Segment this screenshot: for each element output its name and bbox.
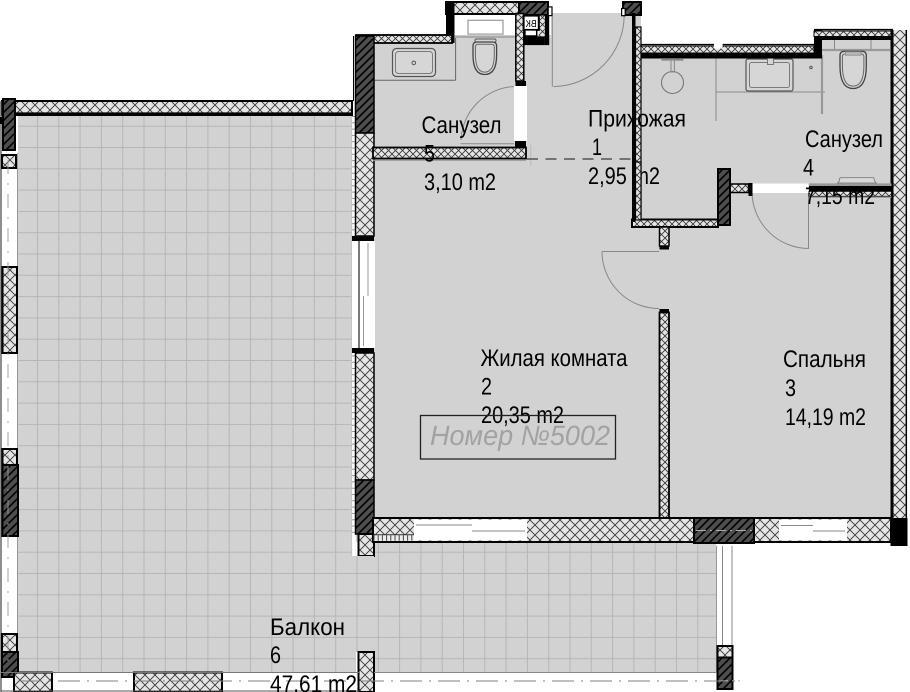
svg-text:Прихожая: Прихожая (588, 106, 686, 133)
svg-text:Санузел: Санузел (805, 126, 883, 153)
svg-text:2: 2 (481, 374, 492, 401)
svg-text:3: 3 (785, 375, 796, 402)
svg-text:14,19 m2: 14,19 m2 (785, 404, 866, 431)
svg-text:47,61 m2: 47,61 m2 (270, 671, 357, 692)
svg-text:1: 1 (592, 134, 602, 161)
svg-text:4: 4 (803, 155, 814, 182)
svg-text:2,95 m2: 2,95 m2 (588, 163, 660, 190)
svg-text:7,15 m2: 7,15 m2 (805, 183, 875, 210)
svg-text:6: 6 (270, 642, 281, 669)
svg-text:Балкон: Балкон (270, 614, 345, 641)
svg-text:Жилая комната: Жилая комната (481, 345, 629, 372)
svg-text:Номер №5002: Номер №5002 (430, 420, 610, 451)
svg-text:5: 5 (424, 141, 435, 168)
svg-text:3,10 m2: 3,10 m2 (424, 169, 496, 196)
svg-text:ВК: ВК (526, 19, 537, 30)
svg-text:Спальня: Спальня (783, 346, 866, 373)
svg-text:Санузел: Санузел (422, 112, 502, 139)
